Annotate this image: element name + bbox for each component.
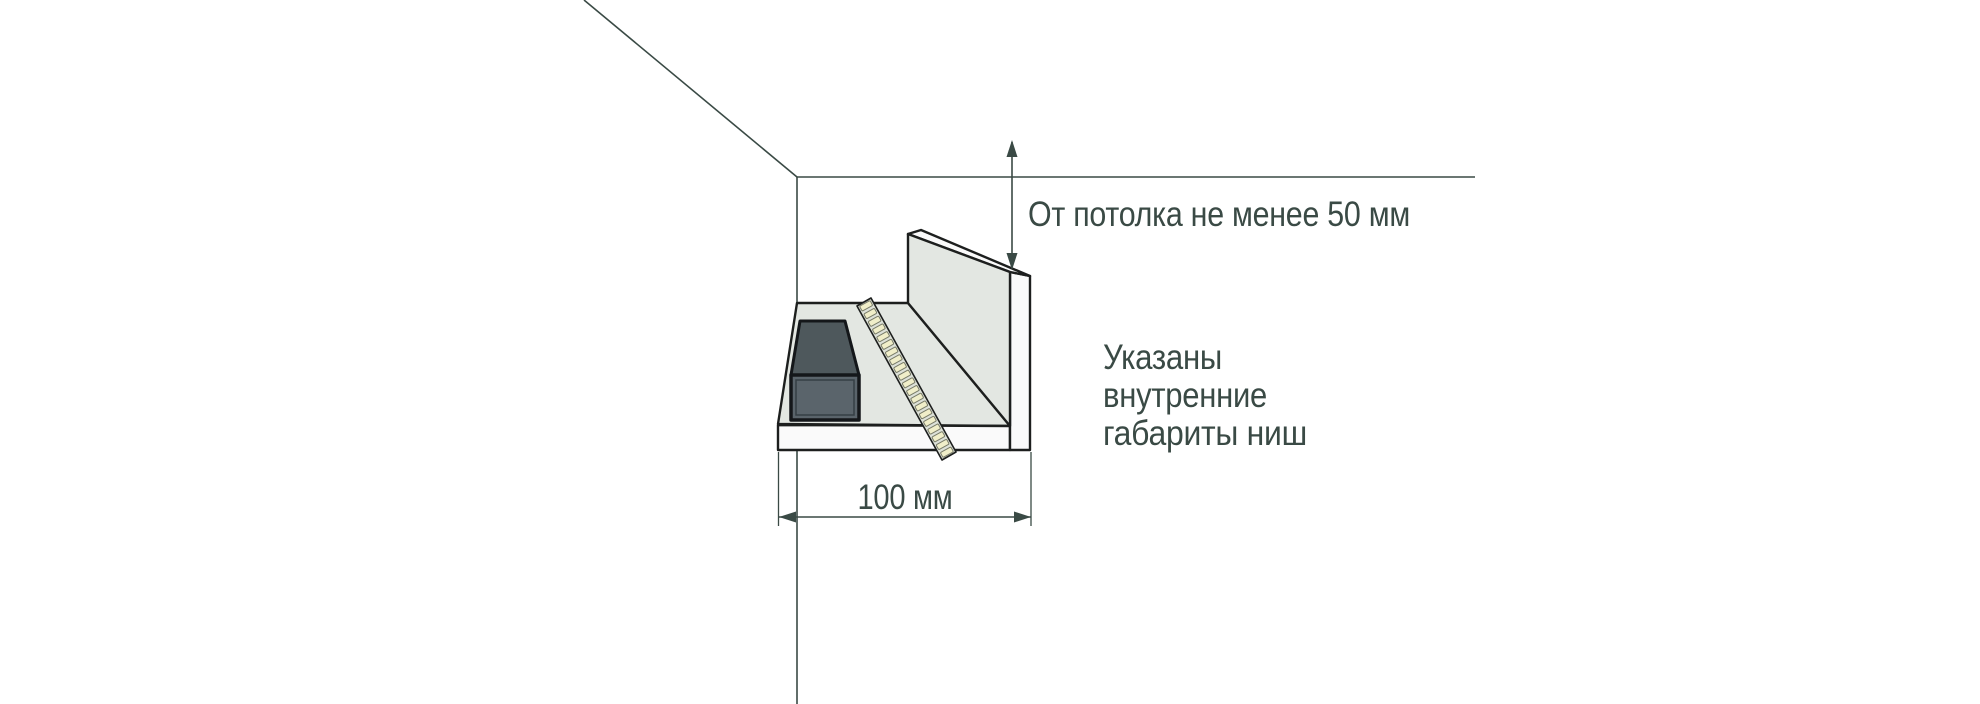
vertical-dimension: От потолка не менее 50 мм [1007, 140, 1411, 270]
inner-dimensions-note: Указаны внутренние габариты ниш [1103, 338, 1307, 453]
niche-panel-side-face [1010, 272, 1030, 450]
inner-dimensions-note-line-3: габариты ниш [1103, 414, 1307, 453]
ceiling-clearance-label: От потолка не менее 50 мм [1028, 195, 1410, 234]
width-dimension-label: 100 мм [858, 478, 953, 517]
arrow-up-icon [1007, 140, 1018, 157]
niche-shelf-front-face [778, 425, 1010, 450]
inner-dimensions-note-line-2: внутренние [1103, 376, 1267, 415]
arrow-right-icon [1014, 512, 1031, 523]
diagram-page: От потолка не менее 50 мм 100 мм Указаны… [0, 0, 1980, 704]
horizontal-dimension: 100 мм [779, 452, 1032, 526]
psu-box [791, 321, 859, 420]
ceiling-corner-line [584, 0, 797, 177]
psu-box-front-face [791, 375, 859, 420]
niche-diagram-canvas: От потолка не менее 50 мм 100 мм Указаны… [0, 0, 1980, 704]
inner-dimensions-note-line-1: Указаны [1103, 338, 1222, 377]
arrow-left-icon [779, 512, 796, 523]
